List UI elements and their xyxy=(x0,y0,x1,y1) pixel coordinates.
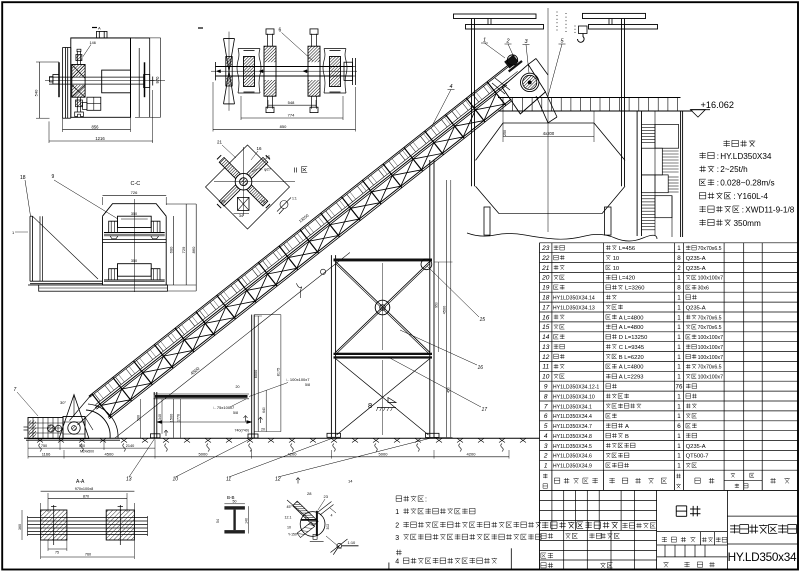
svg-text:850: 850 xyxy=(280,124,287,129)
svg-text:2: 2 xyxy=(506,39,510,45)
svg-text:350: 350 xyxy=(131,212,137,216)
svg-text:1: 1 xyxy=(677,324,681,331)
svg-text:A: A xyxy=(625,424,629,430)
svg-text:8: 8 xyxy=(677,285,681,292)
svg-text:6000: 6000 xyxy=(254,370,258,378)
svg-text:+16.062: +16.062 xyxy=(701,100,734,110)
svg-text:φ27: φ27 xyxy=(264,167,272,172)
svg-text:970: 970 xyxy=(155,76,160,84)
svg-text:856: 856 xyxy=(92,125,100,130)
svg-text:4: 4 xyxy=(544,433,548,440)
svg-text:6: 6 xyxy=(677,423,681,430)
svg-text:8175: 8175 xyxy=(277,368,281,376)
svg-text:Y-150: Y-150 xyxy=(288,533,297,537)
svg-text:70x70x6.5: 70x70x6.5 xyxy=(698,246,722,252)
svg-text:B: B xyxy=(625,434,629,440)
svg-text:100x100x7: 100x100x7 xyxy=(698,276,723,282)
svg-text:1: 1 xyxy=(677,304,681,311)
svg-text:4: 4 xyxy=(395,559,399,566)
svg-text:QT500-7: QT500-7 xyxy=(686,454,709,460)
svg-text:HY.LD350x34: HY.LD350x34 xyxy=(728,550,797,564)
svg-text:16: 16 xyxy=(265,155,271,160)
svg-text:10: 10 xyxy=(542,374,550,381)
svg-text:10: 10 xyxy=(287,526,291,530)
svg-text:76: 76 xyxy=(676,384,683,391)
svg-text:500: 500 xyxy=(136,415,140,421)
svg-text:750: 750 xyxy=(41,444,47,448)
svg-text:2~25t/h: 2~25t/h xyxy=(720,165,748,174)
svg-text:100x100x7: 100x100x7 xyxy=(698,375,723,381)
svg-text:5/8: 5/8 xyxy=(305,383,310,387)
svg-text:HY1LD350X34.8: HY1LD350X34.8 xyxy=(553,434,592,440)
svg-text:10: 10 xyxy=(613,266,619,272)
svg-text:6: 6 xyxy=(544,413,548,420)
svg-text:L=420: L=420 xyxy=(619,276,635,282)
svg-text:Q235-A: Q235-A xyxy=(686,266,706,272)
svg-text:1: 1 xyxy=(677,443,681,450)
svg-text:45°: 45° xyxy=(287,505,293,509)
svg-text:5: 5 xyxy=(544,423,548,430)
svg-text:1: 1 xyxy=(677,393,681,400)
svg-text:1: 1 xyxy=(677,453,681,460)
svg-text:38: 38 xyxy=(261,199,266,204)
svg-text:23: 23 xyxy=(541,245,550,252)
svg-text:54: 54 xyxy=(216,519,220,523)
svg-text:4x200: 4x200 xyxy=(543,131,555,136)
svg-text::: : xyxy=(734,192,736,201)
svg-text:A L=4800: A L=4800 xyxy=(619,325,644,331)
svg-text:12.1: 12.1 xyxy=(285,516,292,520)
svg-text:1: 1 xyxy=(677,354,681,361)
svg-text:A L=4800: A L=4800 xyxy=(619,315,644,321)
svg-text:1:10: 1:10 xyxy=(348,540,357,545)
svg-text:1:1: 1:1 xyxy=(292,197,297,201)
svg-text:A: A xyxy=(98,26,101,31)
svg-text:HY1LD350X34.5: HY1LD350X34.5 xyxy=(553,444,592,450)
svg-text:∟100x100x7: ∟100x100x7 xyxy=(286,377,310,382)
svg-text:9: 9 xyxy=(52,174,55,180)
svg-text:8: 8 xyxy=(544,393,548,400)
svg-text:20: 20 xyxy=(261,428,265,432)
svg-text:2: 2 xyxy=(395,523,399,530)
svg-text:1216: 1216 xyxy=(95,136,105,141)
svg-text:34: 34 xyxy=(239,214,243,218)
svg-text:2: 2 xyxy=(543,453,548,460)
svg-text:350: 350 xyxy=(131,259,137,263)
svg-text:726: 726 xyxy=(131,190,138,195)
svg-text:HY1LD350X34.9: HY1LD350X34.9 xyxy=(553,464,592,470)
svg-text:50: 50 xyxy=(233,500,237,504)
svg-text::: : xyxy=(425,497,427,504)
svg-text:15: 15 xyxy=(480,317,486,323)
svg-text:774: 774 xyxy=(288,113,295,118)
svg-text:950: 950 xyxy=(434,302,438,308)
svg-text:100x100x7: 100x100x7 xyxy=(698,355,723,361)
svg-text:HY1LD350X34.6: HY1LD350X34.6 xyxy=(553,454,592,460)
svg-text:6: 6 xyxy=(279,27,282,33)
svg-text:3: 3 xyxy=(395,535,399,542)
svg-text:5000: 5000 xyxy=(199,452,209,457)
svg-text:860: 860 xyxy=(191,246,196,253)
svg-text:1: 1 xyxy=(677,334,681,341)
svg-text:3: 3 xyxy=(544,443,548,450)
svg-text:2140: 2140 xyxy=(126,444,134,448)
svg-text:870: 870 xyxy=(83,494,89,498)
svg-text::: : xyxy=(742,205,744,214)
svg-text:HY1LD350X34.14: HY1LD350X34.14 xyxy=(553,296,595,302)
svg-text:302: 302 xyxy=(326,524,330,530)
svg-text:14: 14 xyxy=(542,334,550,341)
svg-text:4200: 4200 xyxy=(288,452,298,457)
svg-text:1: 1 xyxy=(677,374,681,381)
svg-text:5000: 5000 xyxy=(379,452,389,457)
svg-text:350mm: 350mm xyxy=(734,219,761,228)
svg-text:13: 13 xyxy=(126,477,132,483)
svg-text:340: 340 xyxy=(158,414,162,420)
svg-text:10: 10 xyxy=(173,477,179,483)
svg-text:1776: 1776 xyxy=(176,414,180,422)
svg-text:18: 18 xyxy=(542,295,550,302)
svg-text:70x70x6.5: 70x70x6.5 xyxy=(698,325,722,331)
svg-text:600: 600 xyxy=(169,246,174,253)
svg-text:4: 4 xyxy=(450,84,453,90)
svg-text:22: 22 xyxy=(541,255,550,262)
svg-text::: : xyxy=(717,179,719,188)
svg-text:HY.LD350X34: HY.LD350X34 xyxy=(720,152,772,161)
svg-text:7: 7 xyxy=(14,387,17,393)
svg-text:740(740): 740(740) xyxy=(235,429,249,433)
svg-text:4200: 4200 xyxy=(467,452,477,457)
svg-text:1: 1 xyxy=(677,433,681,440)
svg-text:20: 20 xyxy=(541,275,550,282)
svg-text:540: 540 xyxy=(34,89,39,96)
svg-text:15: 15 xyxy=(542,324,550,331)
svg-text:1: 1 xyxy=(677,275,681,282)
svg-text:16: 16 xyxy=(478,365,484,371)
svg-text:Q235-A: Q235-A xyxy=(686,256,706,262)
svg-text:HY1LD350X34.13: HY1LD350X34.13 xyxy=(553,305,595,311)
svg-text:HY1LD350X34.1: HY1LD350X34.1 xyxy=(553,404,592,410)
svg-text:100x100x7: 100x100x7 xyxy=(698,345,723,351)
svg-text:7: 7 xyxy=(544,403,548,410)
svg-text:HY1LD350X34.7: HY1LD350X34.7 xyxy=(553,424,592,430)
svg-text:1: 1 xyxy=(483,38,486,44)
svg-text:D L=13250: D L=13250 xyxy=(619,335,648,341)
svg-text:75: 75 xyxy=(55,551,59,555)
svg-text:8: 8 xyxy=(677,255,681,262)
svg-text::: : xyxy=(717,152,719,161)
svg-text:1: 1 xyxy=(677,245,681,252)
svg-text:1166: 1166 xyxy=(42,452,51,457)
svg-text:640: 640 xyxy=(262,407,266,413)
svg-text:5/8: 5/8 xyxy=(233,411,238,415)
svg-text:14: 14 xyxy=(348,479,353,484)
svg-text:100x100x7: 100x100x7 xyxy=(698,335,723,341)
svg-text:1: 1 xyxy=(544,463,548,470)
svg-text:HY1LD350X34.10: HY1LD350X34.10 xyxy=(553,394,595,400)
svg-text:0.028~0.28m/s: 0.028~0.28m/s xyxy=(720,179,774,188)
svg-text:1: 1 xyxy=(677,314,681,321)
svg-text:760: 760 xyxy=(85,553,91,557)
svg-text:1: 1 xyxy=(677,295,681,302)
svg-text:28: 28 xyxy=(307,491,312,496)
svg-text:M24x500: M24x500 xyxy=(80,449,94,453)
svg-text:1500: 1500 xyxy=(169,414,173,422)
svg-text:13: 13 xyxy=(542,344,550,351)
svg-text:Q235-A: Q235-A xyxy=(686,444,706,450)
svg-text:HY1LD350X34.4: HY1LD350X34.4 xyxy=(553,414,592,420)
svg-text:250: 250 xyxy=(503,130,507,136)
svg-text:30°: 30° xyxy=(60,400,66,405)
svg-text:19: 19 xyxy=(542,285,550,292)
svg-text:548: 548 xyxy=(288,100,295,105)
svg-text:4500: 4500 xyxy=(105,452,115,457)
svg-text:A L=4800: A L=4800 xyxy=(619,365,644,371)
svg-text:1: 1 xyxy=(677,364,681,371)
svg-text:17: 17 xyxy=(542,304,550,311)
svg-text:16: 16 xyxy=(542,314,550,321)
svg-text:∟75x100x7: ∟75x100x7 xyxy=(213,405,235,410)
svg-text:9: 9 xyxy=(544,384,548,391)
svg-text:20: 20 xyxy=(236,385,240,389)
svg-text:970x100x8: 970x100x8 xyxy=(75,487,94,491)
svg-text:1: 1 xyxy=(677,463,681,470)
svg-text:146: 146 xyxy=(90,41,96,45)
svg-text:B L=6220: B L=6220 xyxy=(619,355,644,361)
svg-text:16: 16 xyxy=(257,146,263,151)
svg-text:729: 729 xyxy=(181,246,186,253)
svg-text:12: 12 xyxy=(542,354,550,361)
svg-text:30x6: 30x6 xyxy=(698,286,709,292)
svg-text:1: 1 xyxy=(677,344,681,351)
svg-text:HY1LD350X34.12-1: HY1LD350X34.12-1 xyxy=(553,385,600,391)
svg-text:360: 360 xyxy=(18,524,22,530)
svg-text:450: 450 xyxy=(447,387,451,393)
svg-text:L=3260: L=3260 xyxy=(625,286,645,292)
svg-text:A L=2293: A L=2293 xyxy=(619,375,644,381)
svg-text:11: 11 xyxy=(226,477,231,483)
svg-text:140: 140 xyxy=(244,518,248,524)
svg-text:4: 4 xyxy=(331,514,333,518)
svg-text:8: 8 xyxy=(368,401,372,410)
svg-text:Q235-A: Q235-A xyxy=(686,305,706,311)
svg-text:70x70x6.5: 70x70x6.5 xyxy=(698,315,722,321)
svg-text:500: 500 xyxy=(79,444,85,448)
svg-text:11: 11 xyxy=(542,364,549,371)
svg-text:38: 38 xyxy=(221,199,226,204)
svg-text:21: 21 xyxy=(217,140,223,145)
svg-text:1: 1 xyxy=(677,413,681,420)
svg-text:21: 21 xyxy=(541,265,550,272)
svg-text::: : xyxy=(717,165,719,174)
svg-text:C-C: C-C xyxy=(131,181,141,187)
svg-text:1: 1 xyxy=(395,509,399,516)
svg-text:4500: 4500 xyxy=(442,306,446,314)
svg-text:10: 10 xyxy=(613,256,619,262)
svg-text:12: 12 xyxy=(275,477,281,483)
svg-text:XWD11-9-1/8: XWD11-9-1/8 xyxy=(745,205,794,214)
svg-text:II: II xyxy=(294,168,298,175)
svg-text:17: 17 xyxy=(482,407,488,413)
svg-text:C L=9345: C L=9345 xyxy=(619,345,644,351)
svg-text:Y160L-4: Y160L-4 xyxy=(737,192,768,201)
svg-text:23: 23 xyxy=(324,494,329,499)
svg-text:2: 2 xyxy=(677,265,681,272)
svg-text:70x70x6.5: 70x70x6.5 xyxy=(698,365,722,371)
svg-text:L=456: L=456 xyxy=(619,246,635,252)
svg-text:A-A: A-A xyxy=(76,479,85,485)
svg-text:1: 1 xyxy=(677,403,681,410)
